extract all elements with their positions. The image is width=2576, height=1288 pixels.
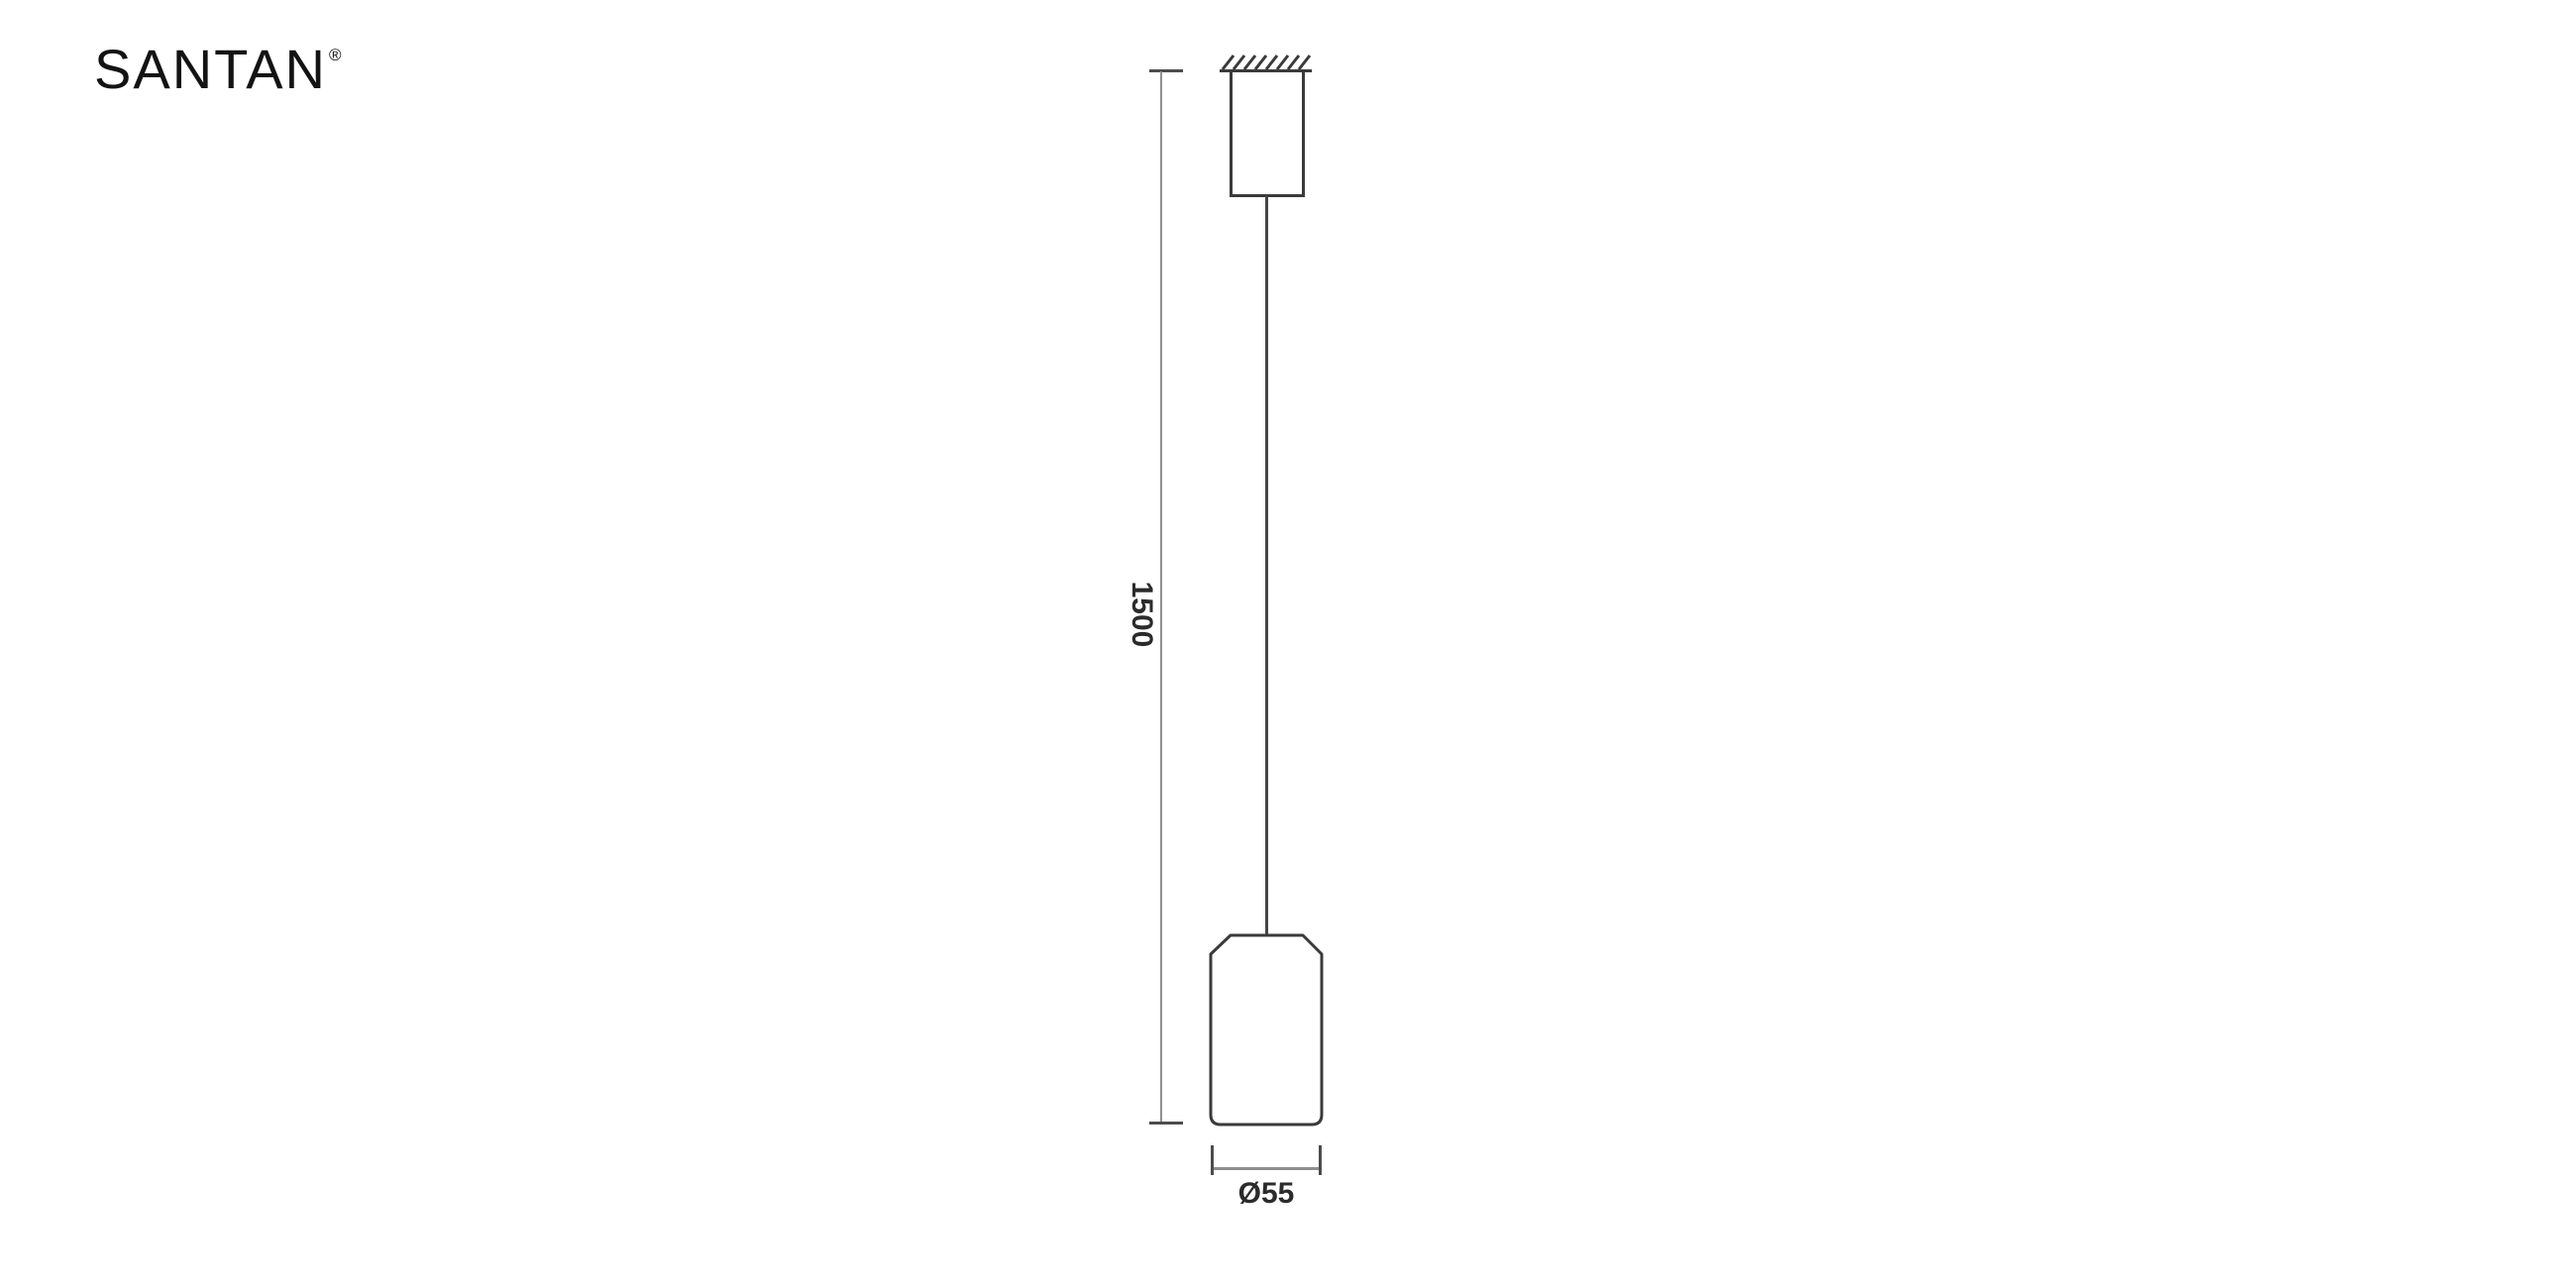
height-dimension-bottom-tick [1149,1122,1183,1125]
height-dimension-label: 1500 [1127,582,1156,648]
diameter-dimension-line [1214,1167,1319,1170]
ceiling-hatch-icon [1220,53,1313,70]
registered-trademark-symbol: ® [329,46,342,64]
diameter-dimension-label: Ø55 [1238,1179,1295,1209]
brand-logo: SANTAN® [94,42,340,97]
diameter-dimension-left-tick [1211,1145,1214,1175]
height-dimension-line [1160,71,1162,1123]
height-dimension-top-tick [1149,69,1183,72]
canopy-outline [1230,69,1305,197]
drawing-canvas: SANTAN® 1500 Ø55 [0,0,2576,1288]
brand-logo-text: SANTAN [94,38,327,100]
lampshade-outline [1207,931,1328,1129]
diameter-dimension-right-tick [1319,1145,1322,1175]
suspension-cable [1265,195,1268,936]
